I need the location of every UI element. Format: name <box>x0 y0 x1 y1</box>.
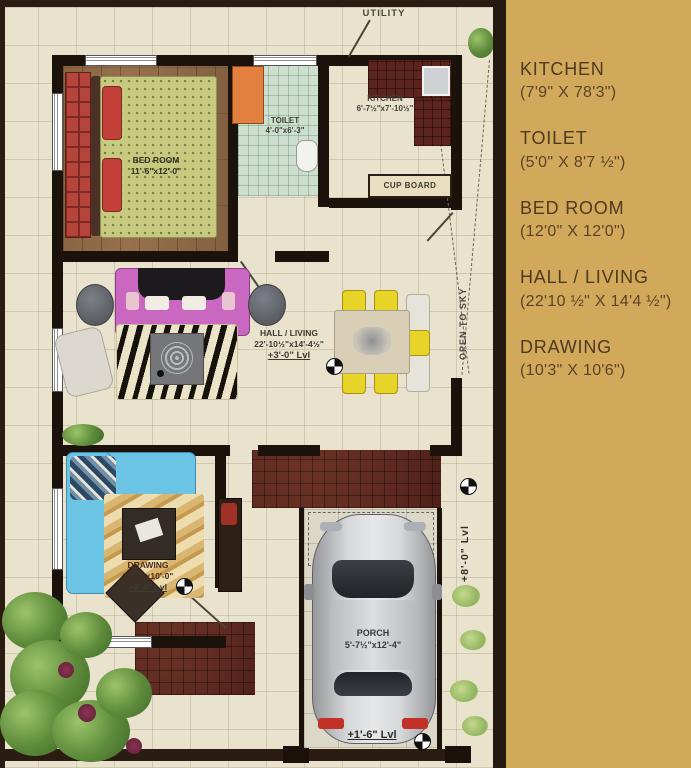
legend-item-bedroom: BED ROOM (12'0" X 12'0") <box>520 195 691 243</box>
wall-toilet-kitchen <box>318 55 329 207</box>
legend-item-hall: HALL / LIVING (22'10 ½" X 14'4 ½") <box>520 264 691 312</box>
side-level-label: +8'-0" Lvl <box>459 498 471 582</box>
table-centerpiece <box>353 327 391 355</box>
car-windshield <box>332 560 414 598</box>
window-drawing-left <box>52 488 63 570</box>
entry-level-label: +1'-6" Lvl <box>328 728 416 742</box>
toilet-dims: 4'-0"x6'-3" <box>252 126 318 136</box>
shrub-icon <box>468 28 494 58</box>
gate-post <box>445 746 471 763</box>
car-mirror <box>304 584 314 600</box>
car-mirror <box>432 584 442 600</box>
window-toilet-top <box>253 55 317 66</box>
legend-room-name: KITCHEN <box>520 56 691 82</box>
legend-room-name: TOILET <box>520 125 691 151</box>
legend-room-dims: (7'9" X 78'3") <box>520 82 691 104</box>
table-dot <box>157 370 164 377</box>
sofa-cushion <box>126 292 139 310</box>
hall-label: HALL / LIVING 22'-10½"x14'-4½" +3'-0" Lv… <box>235 328 343 362</box>
bedroom-dims: 11'-6"x12'-0" <box>100 166 212 177</box>
grass-tuft-icon <box>462 716 488 736</box>
level-marker-icon <box>326 358 343 375</box>
gate-post <box>283 746 309 763</box>
sofa-cushion <box>222 292 235 310</box>
flower-icon <box>58 662 74 678</box>
wall-kitchen-hall <box>329 198 462 208</box>
window-bedroom-top <box>85 55 157 66</box>
hall-dims: 22'-10½"x14'-4½" <box>235 339 343 350</box>
legend-room-dims: (22'10 ½" X 14'4 ½") <box>520 291 691 313</box>
car-rear-window <box>334 672 412 696</box>
cupboard: CUP BOARD <box>368 174 452 198</box>
shrub-icon <box>60 612 112 658</box>
level-marker-icon <box>414 733 431 750</box>
sofa-cushion <box>145 296 169 310</box>
level-marker-icon <box>176 578 193 595</box>
brick-paving-drive <box>252 450 441 508</box>
kitchen-sink <box>422 66 450 96</box>
lounge-chair <box>248 284 286 326</box>
drawing-name: DRAWING <box>98 560 198 571</box>
open-to-sky-label: OPEN TO SKY <box>458 232 468 360</box>
toilet-label: TOILET 4'-0"x6'-3" <box>252 116 318 137</box>
lounge-chair <box>76 284 114 326</box>
porch-name: PORCH <box>320 628 426 640</box>
brick-paving-yard <box>135 622 255 695</box>
sofa-cushion <box>182 296 206 310</box>
legend-room-name: BED ROOM <box>520 195 691 221</box>
porch-dims: 5'-7½"x12'-4" <box>320 640 426 652</box>
legend-room-dims: (10'3" X 10'6") <box>520 360 691 382</box>
foyer-cabinet <box>218 498 242 592</box>
wardrobe <box>65 72 91 238</box>
hall-name: HALL / LIVING <box>235 328 343 339</box>
wc-fixture <box>296 140 318 172</box>
window-bedroom-left <box>52 93 63 171</box>
table-decor <box>161 342 193 374</box>
porch-label: PORCH 5'-7½"x12'-4" <box>320 628 426 651</box>
compound-wall-top <box>0 0 493 7</box>
pillow <box>102 86 122 140</box>
legend-item-toilet: TOILET (5'0" X 8'7 ½") <box>520 125 691 173</box>
toilet-name: TOILET <box>252 116 318 126</box>
wall-hall-porch <box>258 445 320 456</box>
cabinet-decor <box>221 503 237 525</box>
porch-edge-right <box>437 508 442 749</box>
shrub-icon <box>62 424 104 446</box>
sidebar-divider <box>493 0 506 768</box>
kitchen-dims: 6'-7½"x7'-10½" <box>332 104 438 114</box>
bedroom-label: BED ROOM 11'-6"x12'-0" <box>100 155 212 177</box>
flower-icon <box>126 738 142 754</box>
car-headlight <box>404 522 426 531</box>
book <box>135 518 163 543</box>
car-headlight <box>320 522 342 531</box>
legend-room-dims: (12'0" X 12'0") <box>520 221 691 243</box>
grass-tuft-icon <box>460 630 486 650</box>
flower-icon <box>78 704 96 722</box>
compound-wall-left <box>0 0 5 768</box>
legend-item-drawing: DRAWING (10'3" X 10'6") <box>520 334 691 382</box>
level-marker-icon <box>460 478 477 495</box>
drawing-table <box>122 508 176 560</box>
porch-edge-left <box>299 508 304 749</box>
kitchen-label: KITCHEN 6'-7½"x7'-10½" <box>332 94 438 115</box>
legend-sidebar: KITCHEN (7'9" X 78'3") TOILET (5'0" X 8'… <box>506 0 691 768</box>
shrub-icon <box>96 668 152 718</box>
legend-room-name: DRAWING <box>520 334 691 360</box>
coffee-table <box>150 333 204 385</box>
wall-toilet-hall <box>275 251 329 262</box>
floor-plan-image: UTILITY OPEN TO SKY BED ROOM 11'-6"x12'-… <box>0 0 691 768</box>
legend-room-dims: (5'0" X 8'7 ½") <box>520 152 691 174</box>
kitchen-name: KITCHEN <box>332 94 438 104</box>
cupboard-label: CUP BOARD <box>370 176 450 196</box>
bedroom-name: BED ROOM <box>100 155 212 166</box>
utility-label: UTILITY <box>352 8 416 20</box>
legend-item-kitchen: KITCHEN (7'9" X 78'3") <box>520 56 691 104</box>
grass-tuft-icon <box>452 585 480 607</box>
grass-tuft-icon <box>450 680 478 702</box>
wall-hall-porch-right <box>430 445 462 456</box>
legend-room-name: HALL / LIVING <box>520 264 691 290</box>
wall-bedroom-hall <box>52 251 238 262</box>
wall-right-upper <box>451 55 462 210</box>
dining-table <box>334 310 410 374</box>
